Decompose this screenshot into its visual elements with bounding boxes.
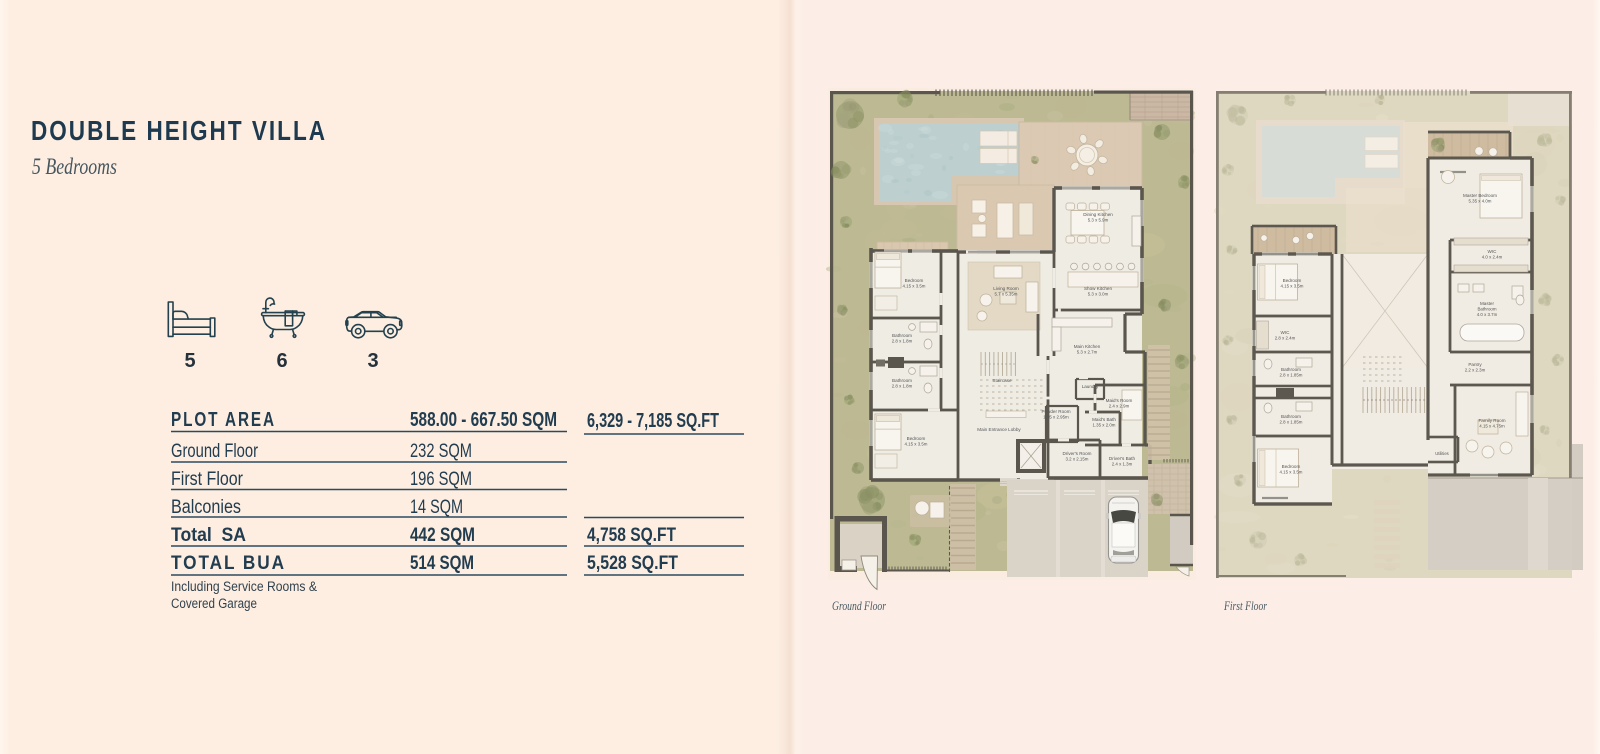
svg-text:14 SQM: 14 SQM <box>410 497 463 518</box>
svg-text:6: 6 <box>276 350 287 372</box>
svg-text:6,329 - 7,185 SQ.FT: 6,329 - 7,185 SQ.FT <box>587 410 719 432</box>
svg-text:First Floor: First Floor <box>1223 598 1267 613</box>
svg-text:588.00 - 667.50 SQM: 588.00 - 667.50 SQM <box>410 409 557 431</box>
svg-text:PLOT AREA: PLOT AREA <box>171 409 276 431</box>
svg-text:TOTAL BUA: TOTAL BUA <box>171 552 286 574</box>
svg-text:First Floor: First Floor <box>171 469 244 490</box>
svg-text:3: 3 <box>367 350 378 372</box>
svg-text:442 SQM: 442 SQM <box>410 525 475 546</box>
svg-text:Ground Floor: Ground Floor <box>171 441 259 462</box>
svg-text:Ground Floor: Ground Floor <box>832 598 887 613</box>
svg-text:DOUBLE HEIGHT VILLA: DOUBLE HEIGHT VILLA <box>31 115 327 146</box>
svg-text:5: 5 <box>184 350 195 372</box>
svg-text:Total SA: Total SA <box>171 525 246 546</box>
svg-text:Including Service Rooms &: Including Service Rooms & <box>171 579 317 594</box>
svg-text:5,528 SQ.FT: 5,528 SQ.FT <box>587 553 678 574</box>
svg-text:4,758 SQ.FT: 4,758 SQ.FT <box>587 525 676 546</box>
svg-text:514 SQM: 514 SQM <box>410 553 474 574</box>
svg-text:Covered Garage: Covered Garage <box>171 596 257 611</box>
svg-text:232 SQM: 232 SQM <box>410 441 472 462</box>
svg-text:5 Bedrooms: 5 Bedrooms <box>32 154 117 179</box>
svg-text:Balconies: Balconies <box>171 497 241 518</box>
svg-text:196 SQM: 196 SQM <box>410 469 472 490</box>
